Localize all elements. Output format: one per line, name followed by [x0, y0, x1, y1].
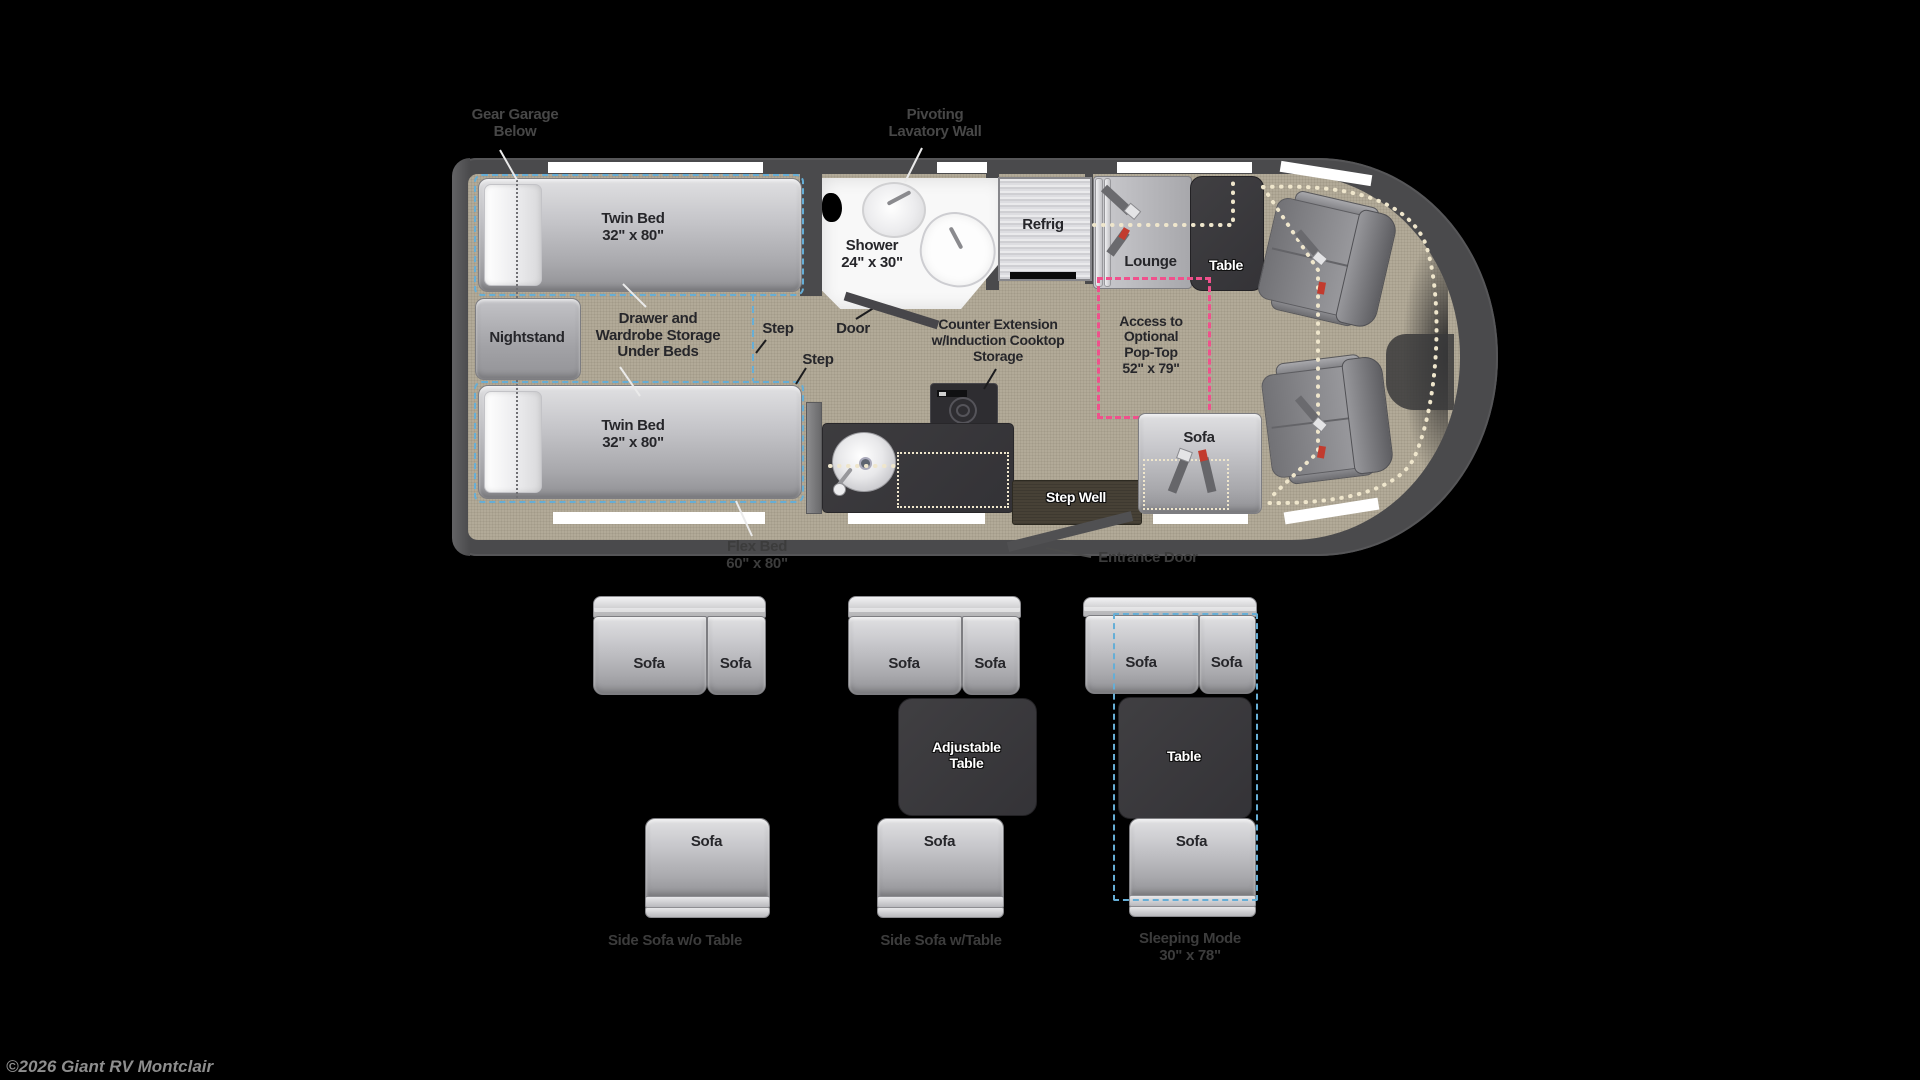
- jump-sofa-label: Sofa: [1138, 430, 1260, 447]
- callout-line: Lavatory Wall: [888, 124, 981, 141]
- poptop-size: 52" x 79": [1122, 361, 1179, 377]
- lounge-armrest: [1095, 178, 1103, 287]
- step-label-upper: Step: [755, 321, 801, 338]
- config2-label: Side Sofa w/Table: [841, 933, 1041, 950]
- poptop-label-line: Access to: [1119, 314, 1182, 330]
- refrigerator-vent: [1010, 272, 1076, 279]
- storage-label-line: Drawer and: [619, 311, 698, 328]
- poptop-label-line: Optional: [1124, 329, 1178, 345]
- twin-bed-label-line: Twin Bed: [601, 211, 664, 228]
- storage-label: Drawer and Wardrobe Storage Under Beds: [577, 306, 739, 366]
- callout-gear-garage: Gear Garage Below: [455, 105, 575, 143]
- window-slot: [553, 512, 765, 524]
- callout-line: Gear Garage: [472, 107, 559, 124]
- jump-sofa-dotted-area: [1143, 459, 1229, 510]
- storage-label-line: Wardrobe Storage: [596, 328, 721, 345]
- window-slot: [937, 162, 987, 173]
- step-label-lower: Step: [795, 352, 841, 369]
- copyright-watermark: ©2026 Giant RV Montclair: [6, 1057, 213, 1077]
- config1-sofa-bottom: [645, 818, 770, 898]
- counter-extension-dotted-area: [897, 452, 1009, 508]
- twin-bed-size: 32" x 80": [602, 228, 664, 245]
- sofa-foot-rail: [877, 907, 1004, 918]
- counter-label-line: w/Induction Cooktop: [932, 333, 1065, 349]
- step-well-label: Step Well: [1012, 490, 1140, 506]
- config2-sofa-left-label: Sofa: [848, 656, 960, 673]
- callout-line: Pivoting: [907, 107, 964, 124]
- rv-floorplan-screenshot: Twin Bed 32" x 80" Twin Bed 32" x 80" Ni…: [0, 0, 1920, 1080]
- sofa-back-rail: [593, 596, 766, 618]
- config2-sofa-bottom-label: Sofa: [877, 834, 1002, 851]
- counter-label-line: Counter Extension: [938, 317, 1057, 333]
- sink-faucet-base: [833, 483, 846, 496]
- shower-sink-bowl: [862, 182, 926, 238]
- config3-label: Sleeping Mode 30" x 78": [1090, 929, 1290, 967]
- config3-label-line: Sleeping Mode: [1139, 931, 1241, 948]
- counter-extension-label: Counter Extension w/Induction Cooktop St…: [916, 312, 1080, 370]
- sofa-foot-rail: [1129, 906, 1256, 917]
- window-slot: [1117, 162, 1252, 173]
- twin-bed-top-label: Twin Bed 32" x 80": [518, 211, 748, 245]
- config2-sofa-right-label: Sofa: [962, 656, 1018, 673]
- config3-size: 30" x 78": [1159, 948, 1221, 965]
- config1-label: Side Sofa w/o Table: [575, 933, 775, 950]
- callout-entrance-door: Entrance Door: [1093, 550, 1203, 567]
- sofa-back-rail: [848, 596, 1021, 618]
- toilet-silhouette: [822, 193, 842, 222]
- wall-galley-partition: [806, 402, 822, 514]
- twin-bed-label-line: Twin Bed: [601, 418, 664, 435]
- callout-line: Below: [494, 124, 537, 141]
- table-label-line: Table: [949, 756, 983, 772]
- nightstand-label: Nightstand: [475, 330, 579, 347]
- dinette-table-label: Table: [1190, 258, 1262, 274]
- sink-drain: [859, 457, 872, 470]
- counter-label-line: Storage: [973, 349, 1023, 365]
- cooktop-display-digit: [939, 392, 946, 396]
- config1-sofa-left-label: Sofa: [593, 656, 705, 673]
- door-label: Door: [828, 321, 878, 338]
- adjustable-table-label: Adjustable Table: [898, 736, 1035, 776]
- dinette-table: [1190, 176, 1264, 291]
- sofa-foot-rail: [645, 907, 770, 918]
- table-label-line: Adjustable: [932, 740, 1001, 756]
- callout-line: 60" x 80": [726, 556, 788, 573]
- callout-flex-bed: Flex Bed 60" x 80": [697, 537, 817, 575]
- refrigerator-label: Refrig: [998, 217, 1088, 234]
- config2-sofa-bottom: [877, 818, 1004, 898]
- cab-console: [1386, 334, 1454, 410]
- shower-label-line: Shower: [846, 238, 898, 255]
- storage-label-line: Under Beds: [617, 344, 698, 361]
- window-slot: [848, 512, 985, 524]
- config1-sofa-bottom-label: Sofa: [645, 834, 768, 851]
- config1-sofa-right-label: Sofa: [707, 656, 764, 673]
- sleeping-mode-bed-outline: [1113, 613, 1258, 901]
- poptop-access-label: Access to Optional Pop-Top 52" x 79": [1097, 297, 1205, 393]
- twin-bed-bottom-label: Twin Bed 32" x 80": [518, 418, 748, 452]
- shower-size: 24" x 30": [841, 255, 903, 272]
- twin-bed-size: 32" x 80": [602, 435, 664, 452]
- callout-line: Flex Bed: [727, 539, 787, 556]
- captain-chair-driver: [1259, 353, 1394, 485]
- poptop-label-line: Pop-Top: [1124, 345, 1178, 361]
- window-slot: [548, 162, 763, 173]
- lounge-label: Lounge: [1108, 254, 1193, 271]
- callout-pivoting-lavatory: Pivoting Lavatory Wall: [875, 105, 995, 143]
- shower-label: Shower 24" x 30": [817, 238, 927, 272]
- cooktop-burner-ring-inner: [956, 404, 970, 417]
